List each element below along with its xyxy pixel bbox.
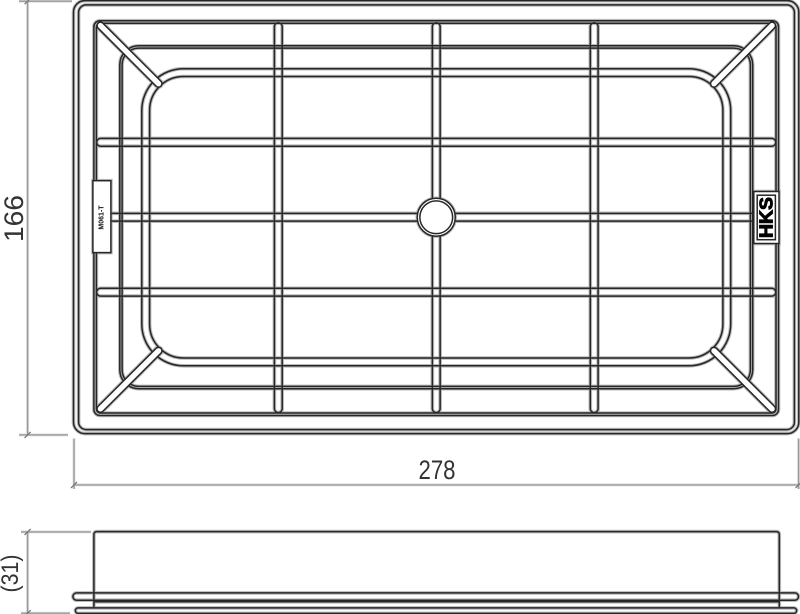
svg-text:HKS: HKS [757, 197, 777, 238]
svg-text:M061-T: M061-T [99, 205, 106, 230]
svg-text:166: 166 [0, 195, 29, 242]
svg-text:(31): (31) [0, 555, 24, 593]
svg-text:278: 278 [419, 455, 456, 485]
